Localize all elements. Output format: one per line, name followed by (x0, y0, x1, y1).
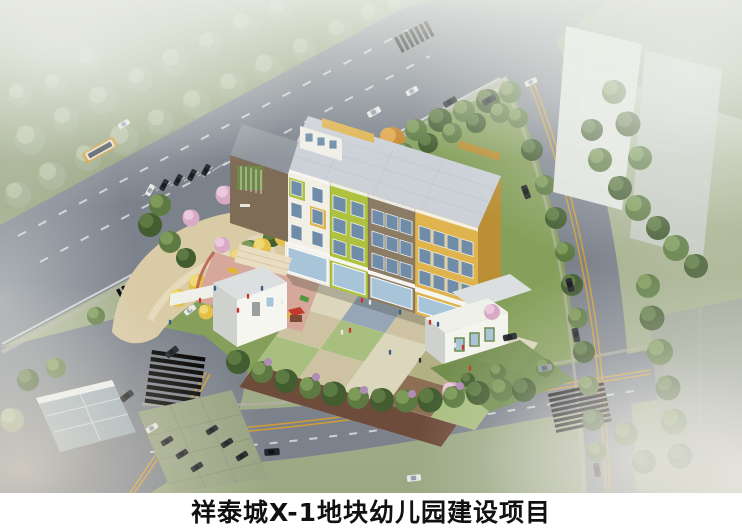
architectural-rendering-page: 祥泰城X-1地块幼儿园建设项目 (0, 0, 742, 529)
project-title: 祥泰城X-1地块幼儿园建设项目 (191, 493, 551, 529)
rendering-canvas (0, 0, 742, 493)
caption-bar: 祥泰城X-1地块幼儿园建设项目 (0, 493, 742, 529)
building-sign (240, 204, 250, 207)
